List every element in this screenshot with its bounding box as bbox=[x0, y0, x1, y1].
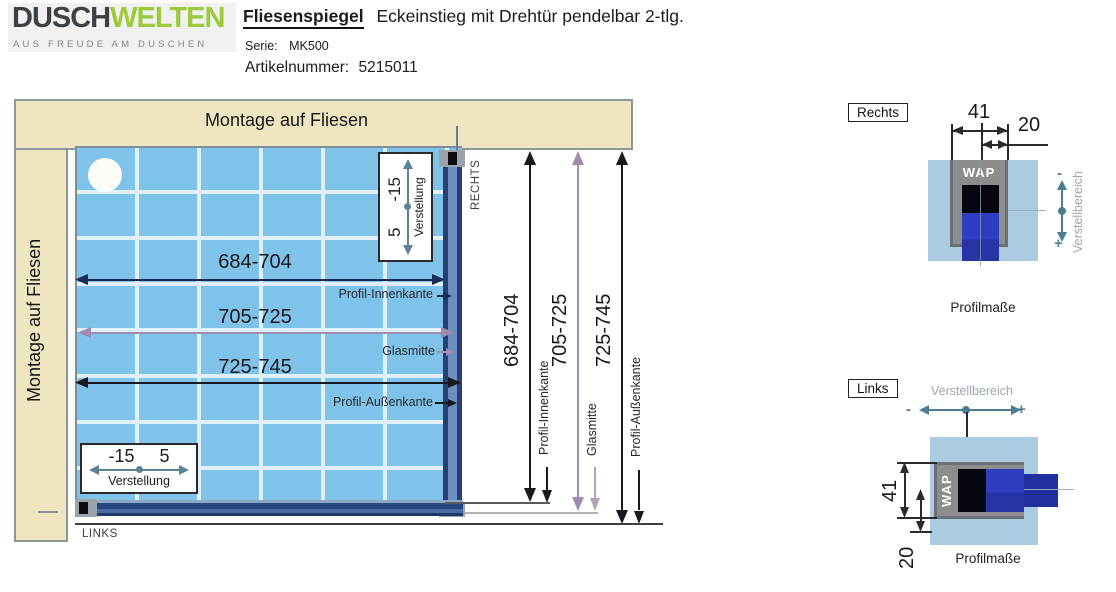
serie-label: Serie: bbox=[245, 39, 278, 53]
rechts-caption: Profilmaße bbox=[938, 300, 1028, 315]
dim-inner-value: 684-704 bbox=[130, 251, 380, 274]
brand-name-part2: WELTEN bbox=[110, 2, 224, 34]
links-dim-20: 20 bbox=[896, 536, 919, 580]
brand-logo: DUSCHWELTEN AUS FREUDE AM DUSCHEN bbox=[8, 3, 236, 52]
brand-tagline: AUS FREUDE AM DUSCHEN bbox=[13, 39, 207, 50]
rechts-minus: - bbox=[1057, 166, 1062, 181]
vdim-glass-line bbox=[577, 162, 579, 502]
arrowhead-icon bbox=[982, 140, 992, 149]
adjustment-box-top: 5 -15 Verstellung bbox=[378, 152, 433, 262]
rechts-dim-20: 20 bbox=[1006, 114, 1052, 137]
center-line bbox=[981, 123, 983, 165]
ext-line bbox=[897, 462, 937, 464]
adjustment-box-bottom: -15 5 Verstellung bbox=[80, 443, 198, 494]
artikelnummer-row: Artikelnummer: 5215011 bbox=[245, 59, 418, 77]
rechts-side-label: RECHTS bbox=[470, 154, 482, 216]
link-line bbox=[1008, 210, 1046, 211]
pointer-line bbox=[435, 402, 449, 404]
door-profile-bottom bbox=[75, 500, 463, 516]
adjust-bottom-neg: -15 bbox=[108, 447, 134, 465]
rechts-range-label: Verstellbereich bbox=[1071, 166, 1085, 258]
ext-line bbox=[897, 517, 937, 519]
door-profile-handle-icon bbox=[79, 502, 88, 514]
adjust-top-neg: -15 bbox=[386, 177, 403, 202]
links-dim-41-line bbox=[904, 469, 906, 513]
adjust-bottom-label: Verstellung bbox=[86, 474, 192, 488]
page-title: Fliesenspiegel Eckeinstieg mit Drehtür p… bbox=[243, 6, 684, 27]
adjust-bottom-pos: 5 bbox=[159, 447, 169, 465]
center-dot-icon bbox=[1058, 207, 1066, 215]
brand-name-part1: DUSCH bbox=[12, 2, 110, 34]
vdim-glass-value: 705-725 bbox=[549, 240, 572, 420]
links-side-label: LINKS bbox=[82, 528, 118, 540]
center-line bbox=[980, 160, 981, 266]
detail-links-title: Links bbox=[848, 379, 898, 398]
links-glass bbox=[986, 469, 1024, 512]
rechts-plus: + bbox=[1054, 236, 1063, 251]
links-glass-ext bbox=[1024, 474, 1058, 507]
ext-line bbox=[910, 531, 932, 533]
vdim-inner-value: 684-704 bbox=[501, 240, 524, 420]
adjust-top-pos: 5 bbox=[386, 228, 403, 237]
dim-outer-line bbox=[80, 382, 452, 384]
detail-rechts-title: Rechts bbox=[848, 103, 908, 122]
arrowhead-icon bbox=[952, 126, 963, 135]
top-wall-label: Montage auf Fliesen bbox=[14, 110, 559, 131]
arrowhead-icon bbox=[572, 497, 584, 511]
dim-outer-edge-label: Profil-Außenkante bbox=[255, 395, 433, 409]
links-minus: - bbox=[906, 402, 911, 417]
serie-row: Serie: MK500 bbox=[245, 39, 329, 53]
product-name: Fliesenspiegel bbox=[243, 6, 364, 29]
shower-head-icon bbox=[88, 158, 122, 192]
profile-center-tick bbox=[456, 126, 458, 150]
arrowhead-icon bbox=[590, 498, 600, 511]
arrowhead-icon bbox=[524, 151, 536, 165]
spec-sheet: DUSCHWELTEN AUS FREUDE AM DUSCHEN Fliese… bbox=[0, 0, 1116, 592]
adjust-range-arrow-icon bbox=[407, 161, 409, 253]
vdim-outer-line bbox=[621, 162, 623, 514]
dim-inner-line bbox=[80, 279, 436, 281]
artikel-label: Artikelnummer: bbox=[245, 59, 349, 76]
pointer-line bbox=[437, 351, 447, 353]
links-profile-label: WAP bbox=[939, 467, 954, 514]
ref-line-inner bbox=[445, 502, 550, 504]
dim-glass-line bbox=[83, 332, 445, 334]
dim-outer-value: 725-745 bbox=[130, 356, 380, 379]
vdim-outer-edge-label: Profil-Außenkante bbox=[629, 348, 643, 466]
arrowhead-icon bbox=[616, 151, 628, 165]
arrowhead-icon bbox=[616, 510, 628, 524]
dim-glass-value: 705-725 bbox=[130, 306, 380, 329]
rechts-profile-label: WAP bbox=[950, 165, 1008, 180]
links-range-arrow bbox=[928, 409, 1012, 411]
arrowhead-icon bbox=[916, 489, 925, 500]
ref-line-outer bbox=[75, 523, 663, 525]
vdim-outer-value: 725-745 bbox=[593, 240, 616, 420]
links-dim-41: 41 bbox=[879, 465, 902, 517]
links-glass-clamp bbox=[958, 469, 986, 512]
arrowhead-icon bbox=[572, 151, 584, 165]
product-description: Eckeinstieg mit Drehtür pendelbar 2-tlg. bbox=[376, 6, 683, 26]
profile-top-handle-icon bbox=[448, 152, 457, 165]
dim-inner-edge-label: Profil-Innenkante bbox=[255, 287, 433, 301]
pointer-line bbox=[638, 470, 640, 510]
artikel-value: 5215011 bbox=[359, 59, 418, 76]
arrowhead-icon bbox=[524, 488, 536, 502]
adjust-top-label: Verstellung bbox=[412, 156, 426, 258]
ref-line-glass bbox=[465, 512, 598, 514]
center-line bbox=[1024, 489, 1074, 490]
adjust-range-arrow-icon bbox=[91, 469, 187, 471]
serie-value: MK500 bbox=[289, 39, 329, 53]
vdim-inner-line bbox=[529, 162, 531, 492]
arrowhead-icon bbox=[919, 405, 929, 415]
pointer-line bbox=[594, 467, 596, 499]
links-caption: Profilmaße bbox=[943, 551, 1033, 566]
links-range-label: Verstellbereich bbox=[928, 384, 1016, 398]
left-wall-label: Montage auf Fliesen bbox=[24, 110, 45, 530]
links-plus: + bbox=[1017, 402, 1026, 417]
rechts-dim-41: 41 bbox=[950, 101, 1008, 124]
pointer-line bbox=[546, 467, 548, 491]
wall-tick bbox=[38, 511, 58, 513]
